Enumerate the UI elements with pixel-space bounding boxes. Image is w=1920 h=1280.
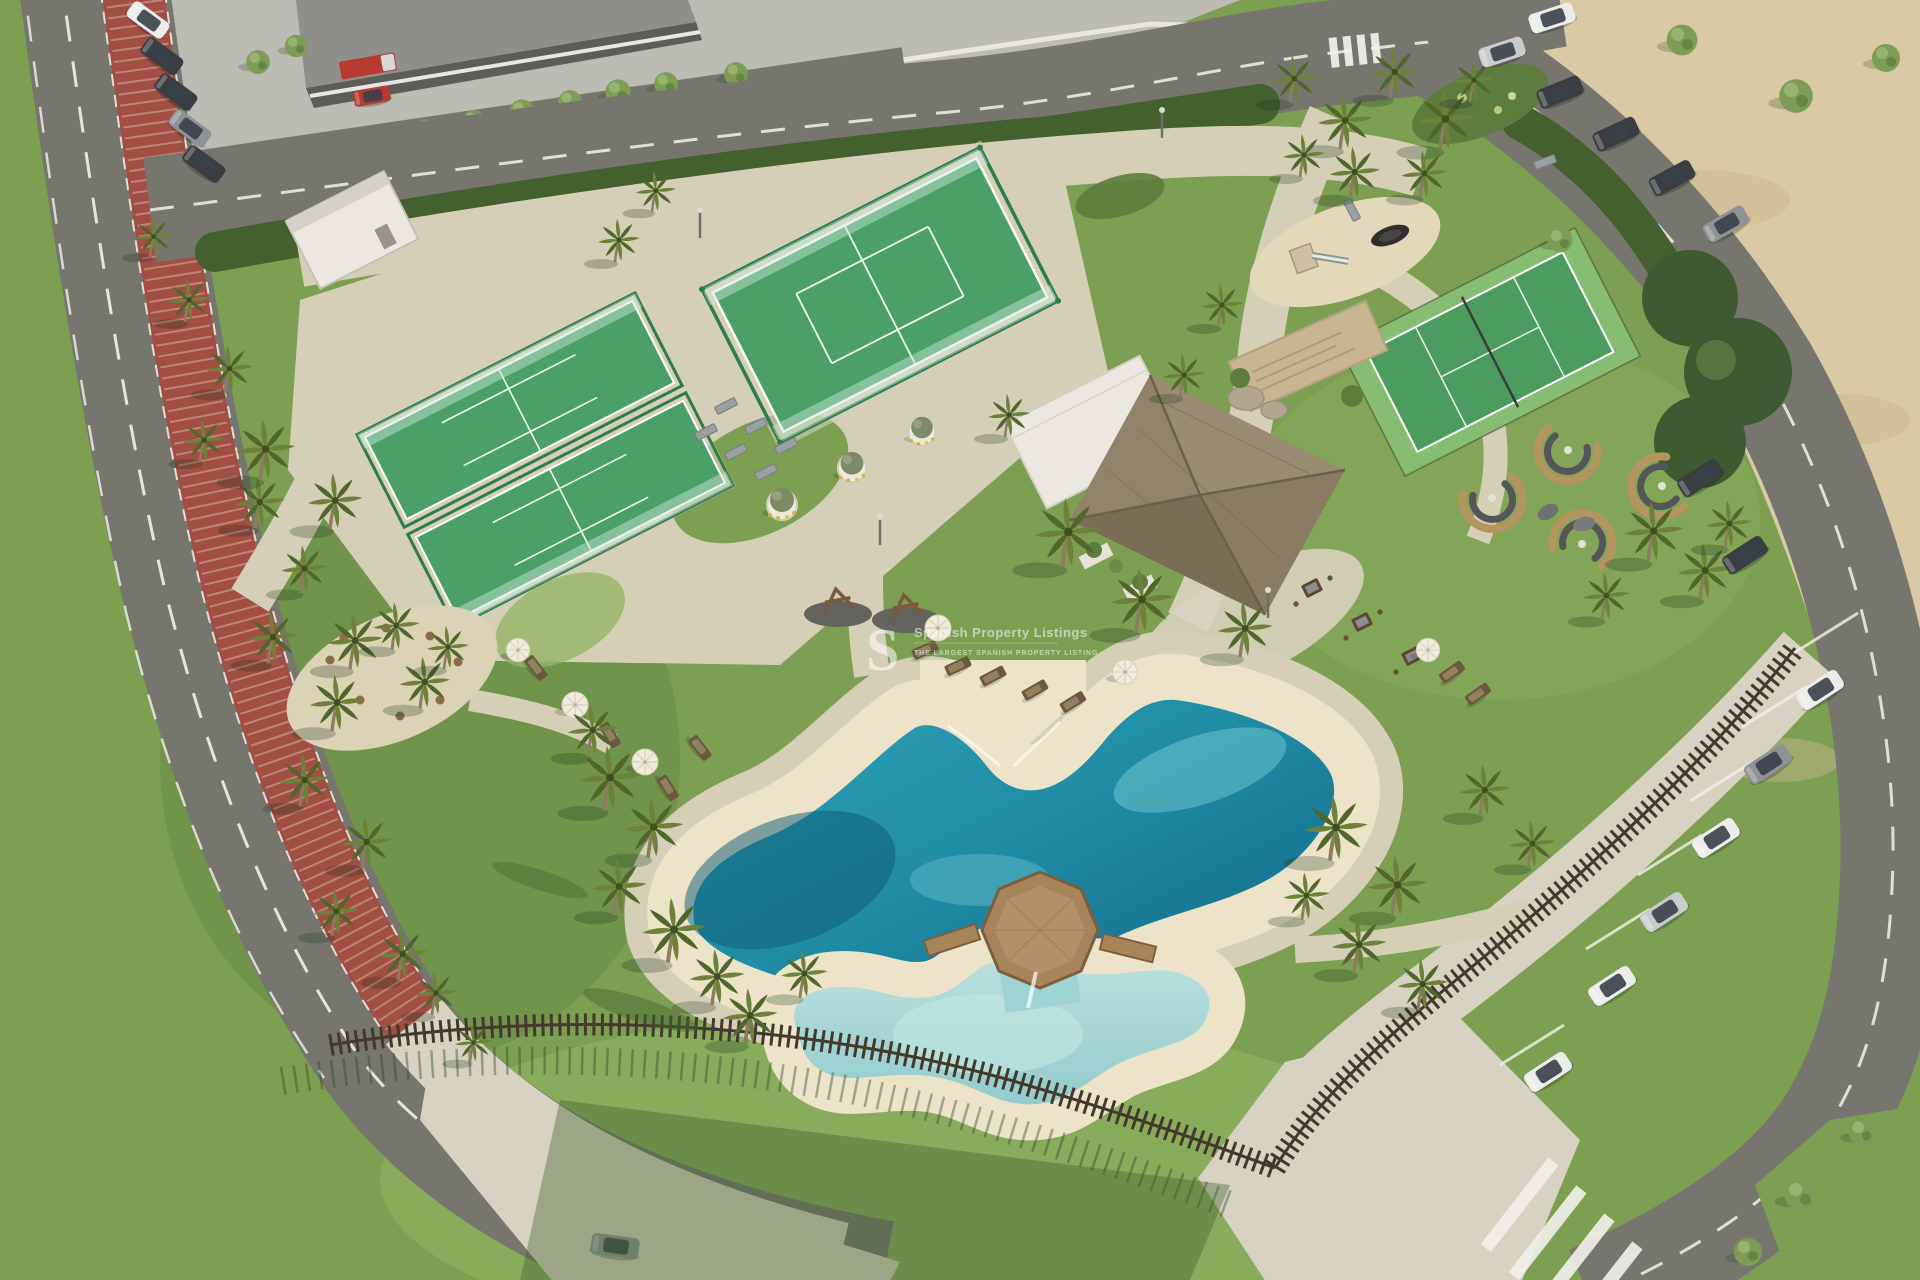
watermark-title: Spanish Property Listings xyxy=(914,625,1088,640)
aerial-photo: S Spanish Property Listings THE LARGEST … xyxy=(0,0,1920,1280)
watermark-logo: S xyxy=(866,617,899,683)
watermark-subtitle: THE LARGEST SPANISH PROPERTY LISTING xyxy=(914,650,1098,657)
